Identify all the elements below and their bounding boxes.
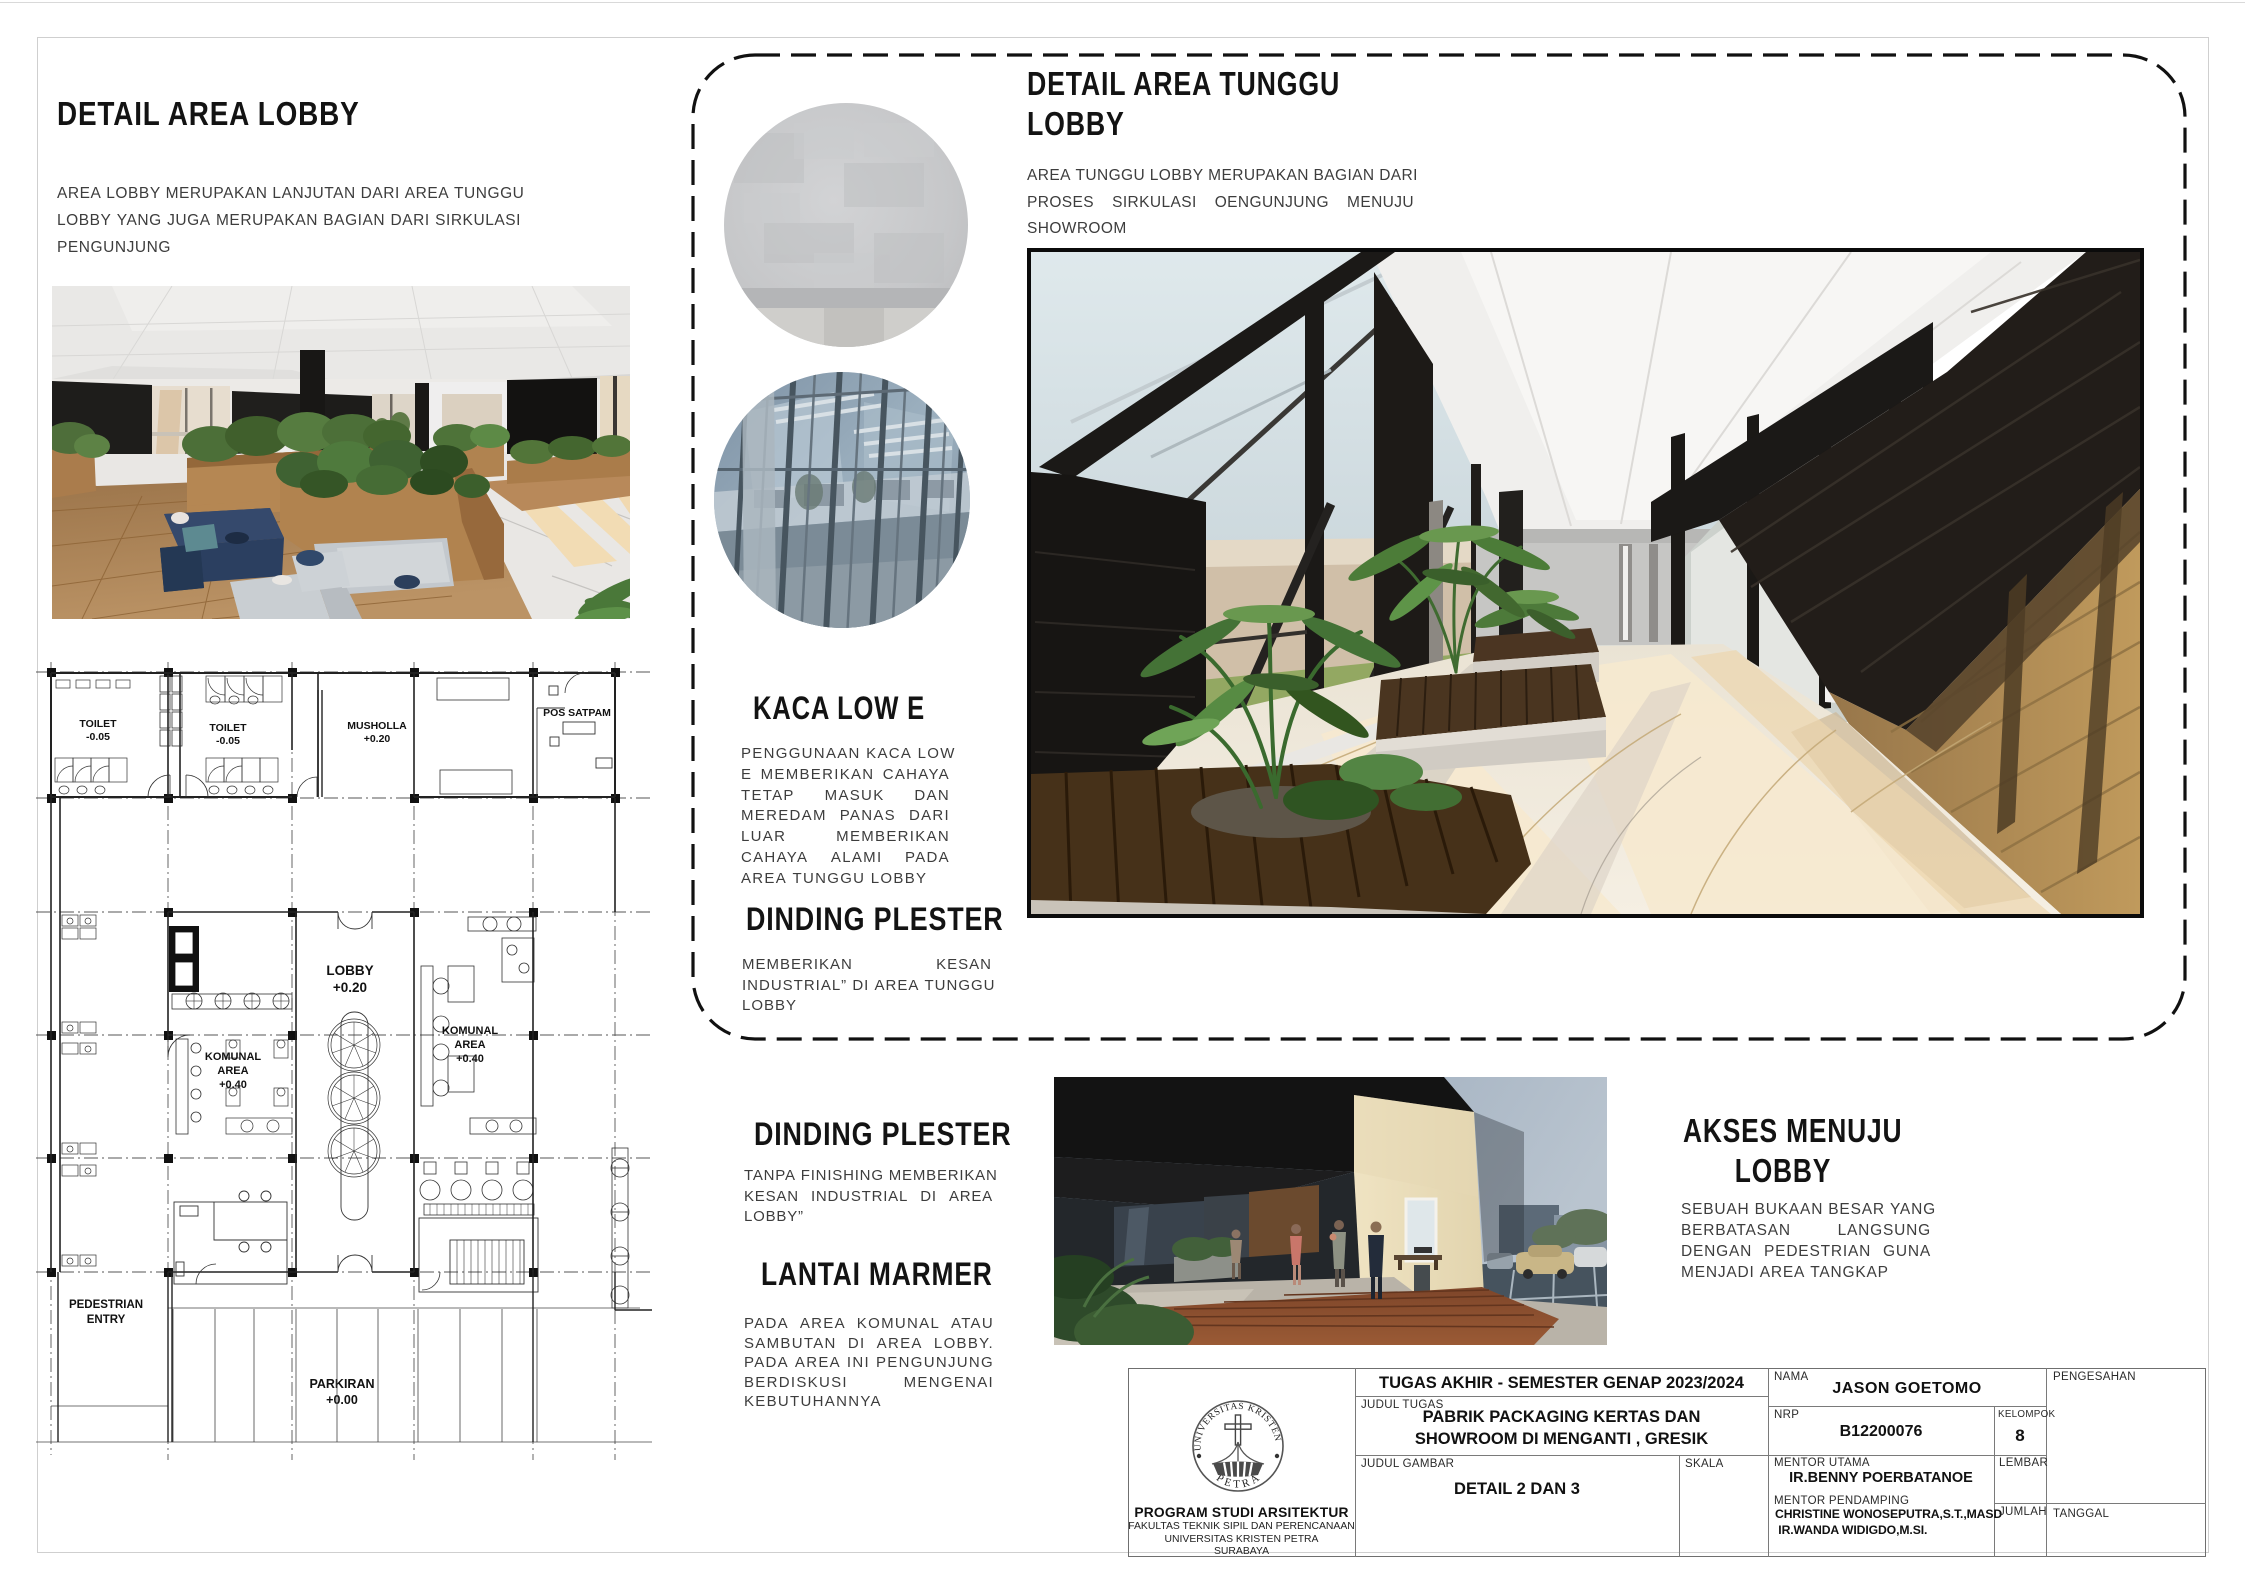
svg-text:POS SATPAM: POS SATPAM — [543, 707, 611, 719]
svg-text:KOMUNAL: KOMUNAL — [442, 1025, 498, 1037]
svg-text:AREA: AREA — [454, 1039, 485, 1051]
svg-text:ENTRY: ENTRY — [87, 1314, 126, 1326]
svg-text:LOBBY: LOBBY — [326, 963, 373, 978]
svg-text:+0.40: +0.40 — [219, 1079, 247, 1091]
svg-text:PARKIRAN: PARKIRAN — [309, 1377, 374, 1391]
svg-text:KOMUNAL: KOMUNAL — [205, 1051, 261, 1063]
svg-text:+0.40: +0.40 — [456, 1053, 484, 1065]
svg-text:-0.05: -0.05 — [86, 731, 110, 743]
svg-text:-0.05: -0.05 — [216, 735, 240, 747]
svg-text:+0.00: +0.00 — [326, 1393, 358, 1407]
svg-text:AREA: AREA — [217, 1065, 248, 1077]
svg-text:MUSHOLLA: MUSHOLLA — [347, 720, 407, 732]
svg-text:TOILET: TOILET — [209, 722, 247, 734]
svg-text:PEDESTRIAN: PEDESTRIAN — [69, 1299, 143, 1311]
svg-text:+0.20: +0.20 — [364, 733, 391, 745]
svg-text:TOILET: TOILET — [79, 718, 117, 730]
svg-text:+0.20: +0.20 — [333, 980, 367, 995]
